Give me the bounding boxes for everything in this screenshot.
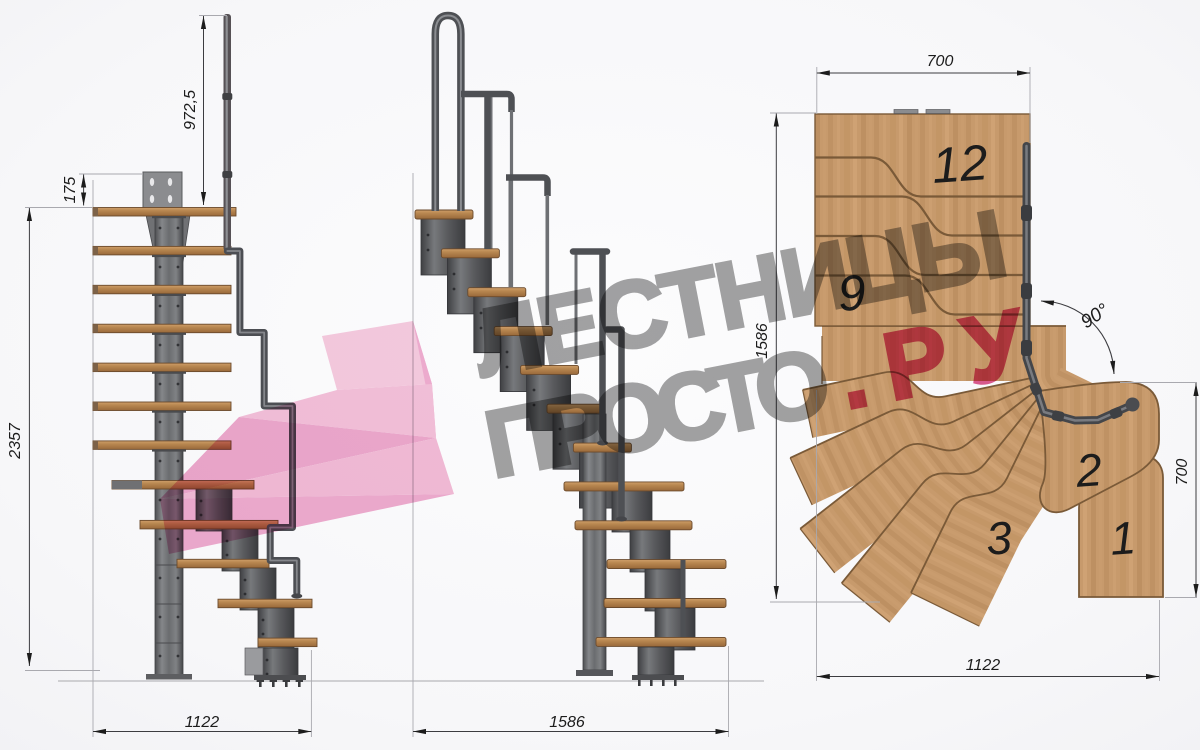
svg-text:3: 3 — [984, 511, 1014, 565]
svg-text:1: 1 — [1108, 511, 1137, 565]
svg-text:12: 12 — [930, 134, 990, 194]
svg-text:175: 175 — [62, 177, 79, 204]
svg-text:2: 2 — [1073, 443, 1103, 497]
svg-text:700: 700 — [927, 53, 954, 70]
svg-text:1122: 1122 — [185, 714, 220, 731]
svg-text:1586: 1586 — [549, 714, 585, 731]
svg-text:700: 700 — [1174, 459, 1191, 486]
svg-text:1122: 1122 — [966, 657, 1001, 674]
svg-text:2357: 2357 — [7, 422, 24, 460]
svg-text:972,5: 972,5 — [182, 90, 199, 130]
